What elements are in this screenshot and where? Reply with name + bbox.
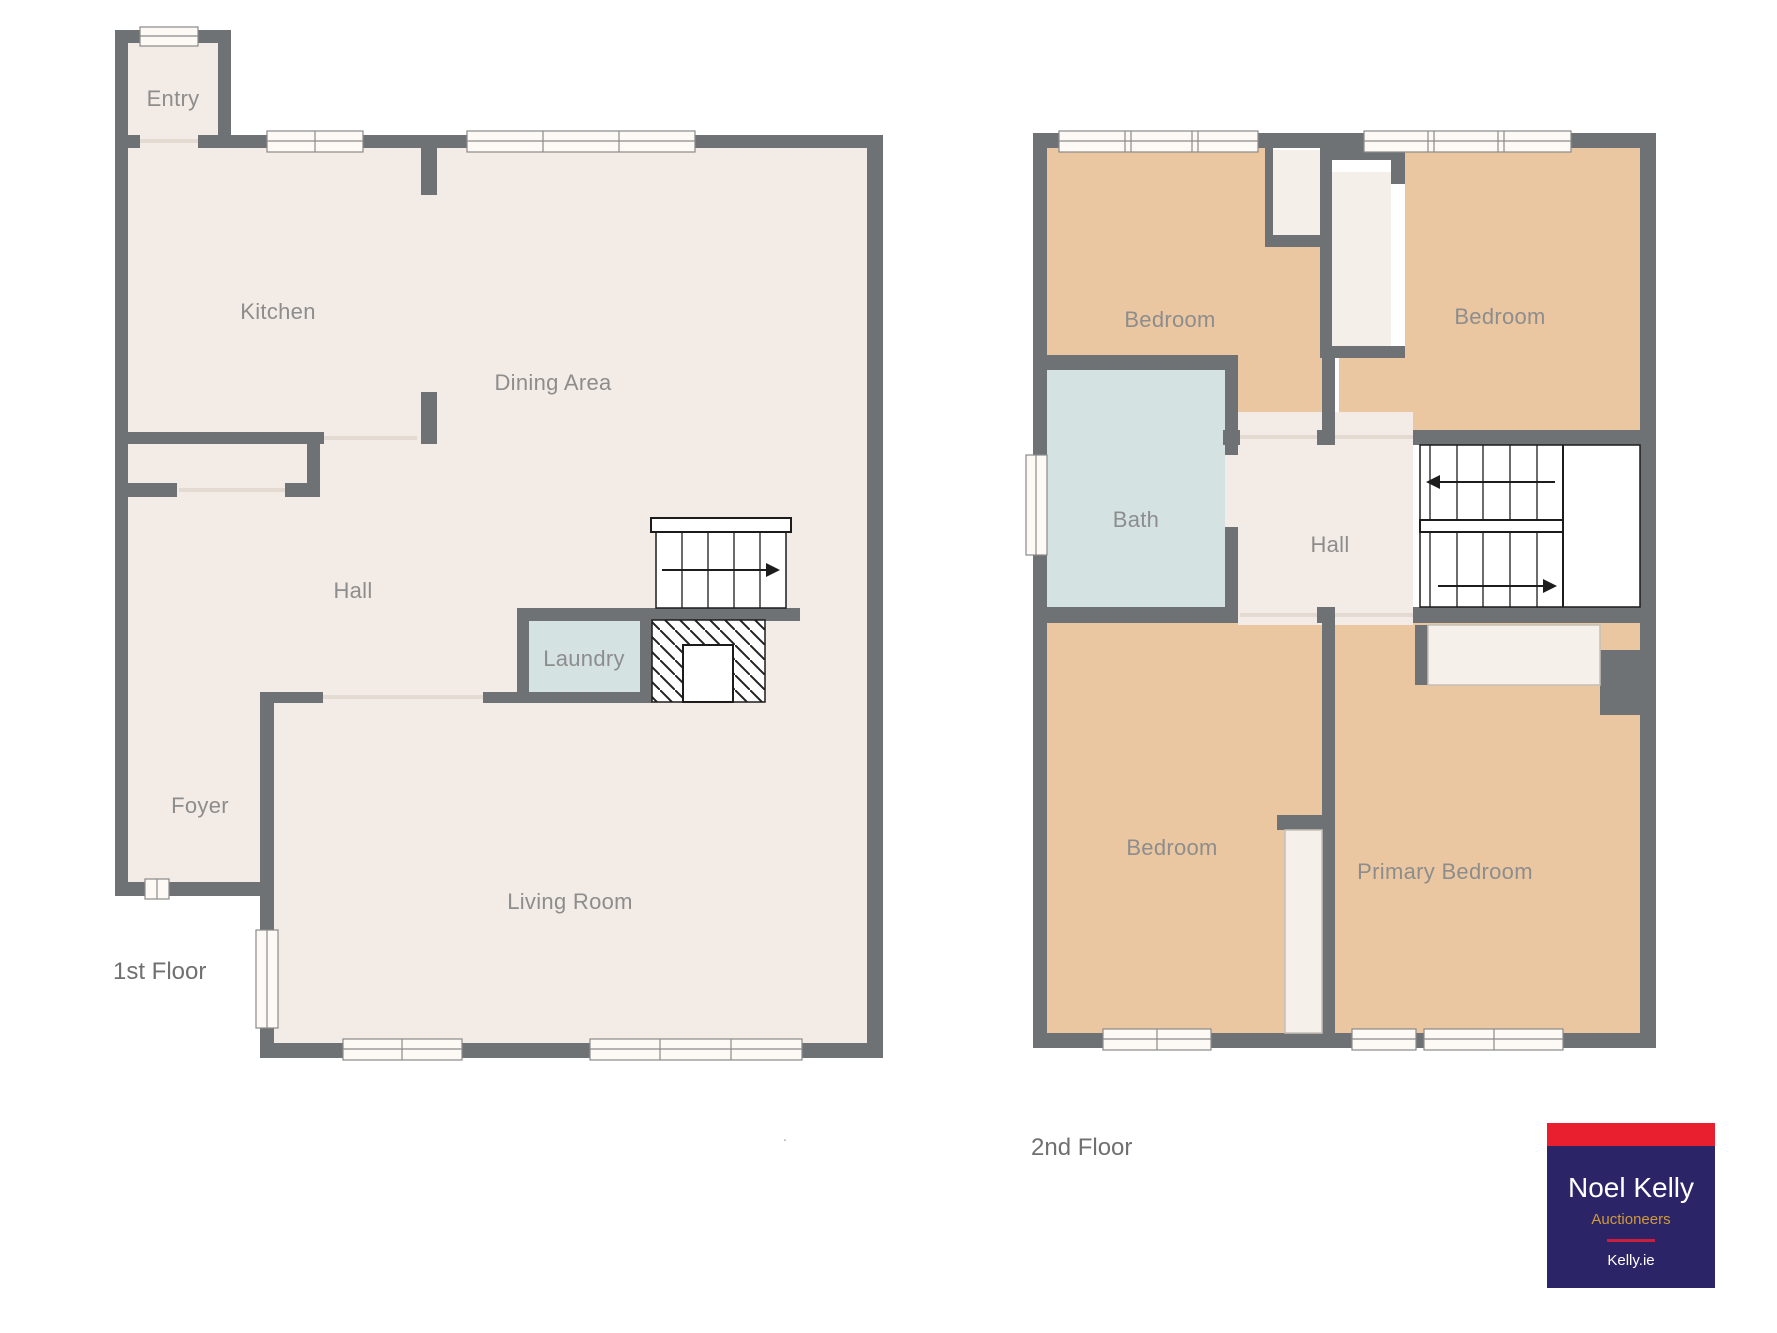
window [1352, 1029, 1416, 1050]
first-floor-plan [115, 27, 883, 1060]
second-floor-stairs [1420, 445, 1640, 607]
floor-title-2nd: 2nd Floor [1031, 1134, 1132, 1162]
floor-title-1st: 1st Floor [113, 958, 206, 986]
window [1103, 1029, 1211, 1050]
logo-red-bar [1547, 1123, 1715, 1146]
bath-floor [1047, 370, 1225, 607]
window [1059, 131, 1258, 152]
room-label-living-room: Living Room [507, 889, 633, 915]
first-floor-stairs [651, 518, 791, 608]
stray-dot: . [783, 1128, 787, 1144]
room-label-hall-1f: Hall [333, 578, 372, 604]
window [1026, 455, 1047, 555]
window [140, 27, 198, 46]
window [1364, 131, 1571, 152]
room-label-entry: Entry [147, 86, 200, 112]
room-label-foyer: Foyer [171, 793, 229, 819]
window [145, 879, 169, 899]
closet-strip [1428, 625, 1600, 685]
room-label-bedroom-tr: Bedroom [1454, 304, 1545, 330]
window [590, 1039, 802, 1060]
room-label-hall-2f: Hall [1310, 532, 1349, 558]
logo-tagline: Auctioneers [1591, 1212, 1670, 1227]
stair-landing [651, 518, 791, 532]
room-label-primary-bedroom: Primary Bedroom [1357, 859, 1533, 885]
closet-floor [1332, 172, 1391, 346]
window [256, 930, 278, 1028]
second-floor-plan [1026, 131, 1656, 1050]
room-label-laundry: Laundry [543, 646, 625, 672]
stair-return-rail [1420, 520, 1563, 532]
bath-doorway [1225, 455, 1238, 527]
floorplan-drawing [0, 0, 1777, 1333]
window [467, 131, 695, 152]
room-label-kitchen: Kitchen [240, 299, 315, 325]
under-stair-storage [652, 620, 765, 702]
agency-logo: Noel Kelly Auctioneers Kelly.ie [1547, 1123, 1715, 1288]
logo-brand-name: Noel Kelly [1568, 1174, 1694, 1202]
closet-strip [1285, 830, 1322, 1033]
logo-website: Kelly.ie [1607, 1253, 1654, 1268]
room-label-bedroom-tl: Bedroom [1124, 307, 1215, 333]
room-label-bath: Bath [1113, 507, 1159, 533]
room-label-bedroom-bl: Bedroom [1126, 835, 1217, 861]
logo-divider [1607, 1239, 1655, 1242]
floorplan-canvas: Entry Kitchen Dining Area Hall Laundry F… [0, 0, 1777, 1333]
room-label-dining-area: Dining Area [494, 370, 611, 396]
window [1424, 1029, 1563, 1050]
window [343, 1039, 462, 1060]
closet-floor [1273, 150, 1320, 235]
window [267, 131, 363, 152]
